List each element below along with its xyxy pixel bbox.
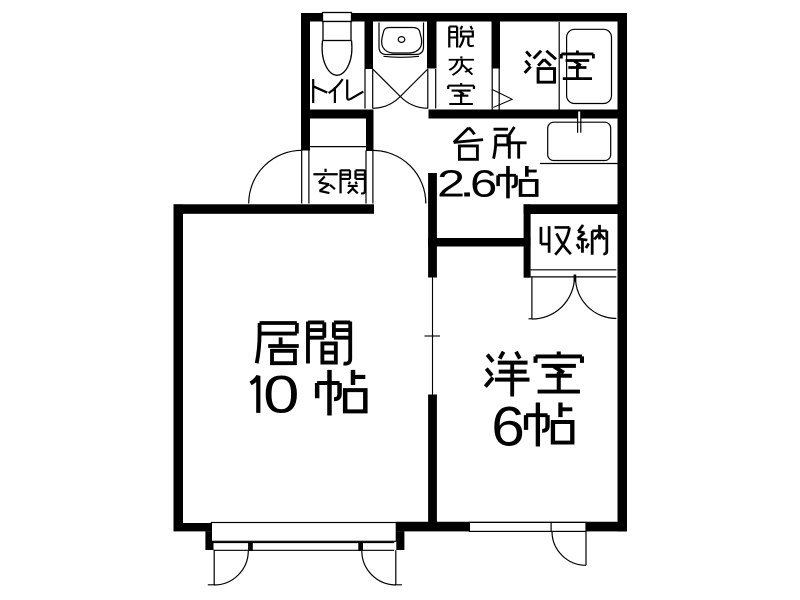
svg-text:6: 6 bbox=[470, 163, 497, 205]
svg-text:0: 0 bbox=[263, 364, 299, 424]
svg-text:6: 6 bbox=[491, 396, 525, 458]
